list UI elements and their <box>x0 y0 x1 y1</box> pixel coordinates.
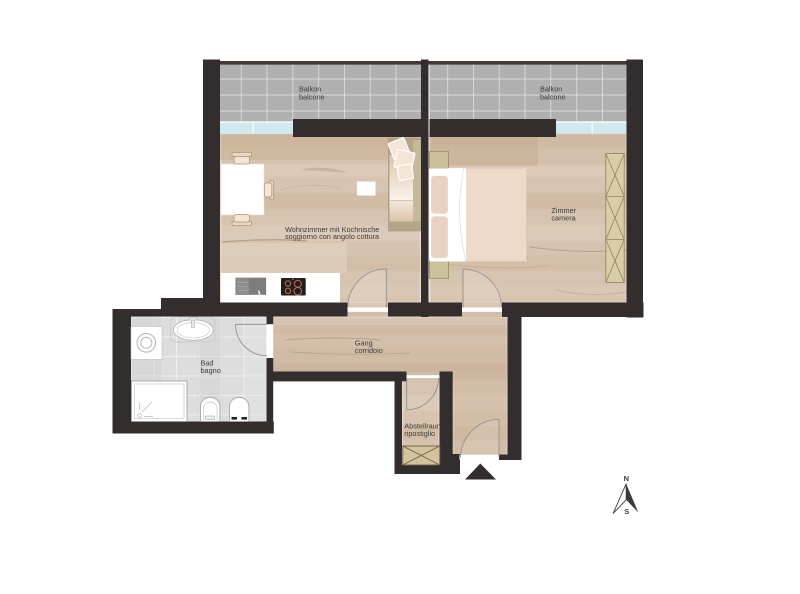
svg-text:N: N <box>624 474 629 483</box>
svg-text:balcone: balcone <box>299 92 325 101</box>
svg-text:balcone: balcone <box>540 92 566 101</box>
svg-text:corridoio: corridoio <box>355 346 383 355</box>
svg-text:soggiorno con angolo cottura: soggiorno con angolo cottura <box>285 232 380 241</box>
svg-text:camera: camera <box>551 214 576 223</box>
svg-text:bagno: bagno <box>201 366 221 375</box>
svg-text:S: S <box>624 507 629 516</box>
svg-text:ripostiglio: ripostiglio <box>404 429 435 438</box>
